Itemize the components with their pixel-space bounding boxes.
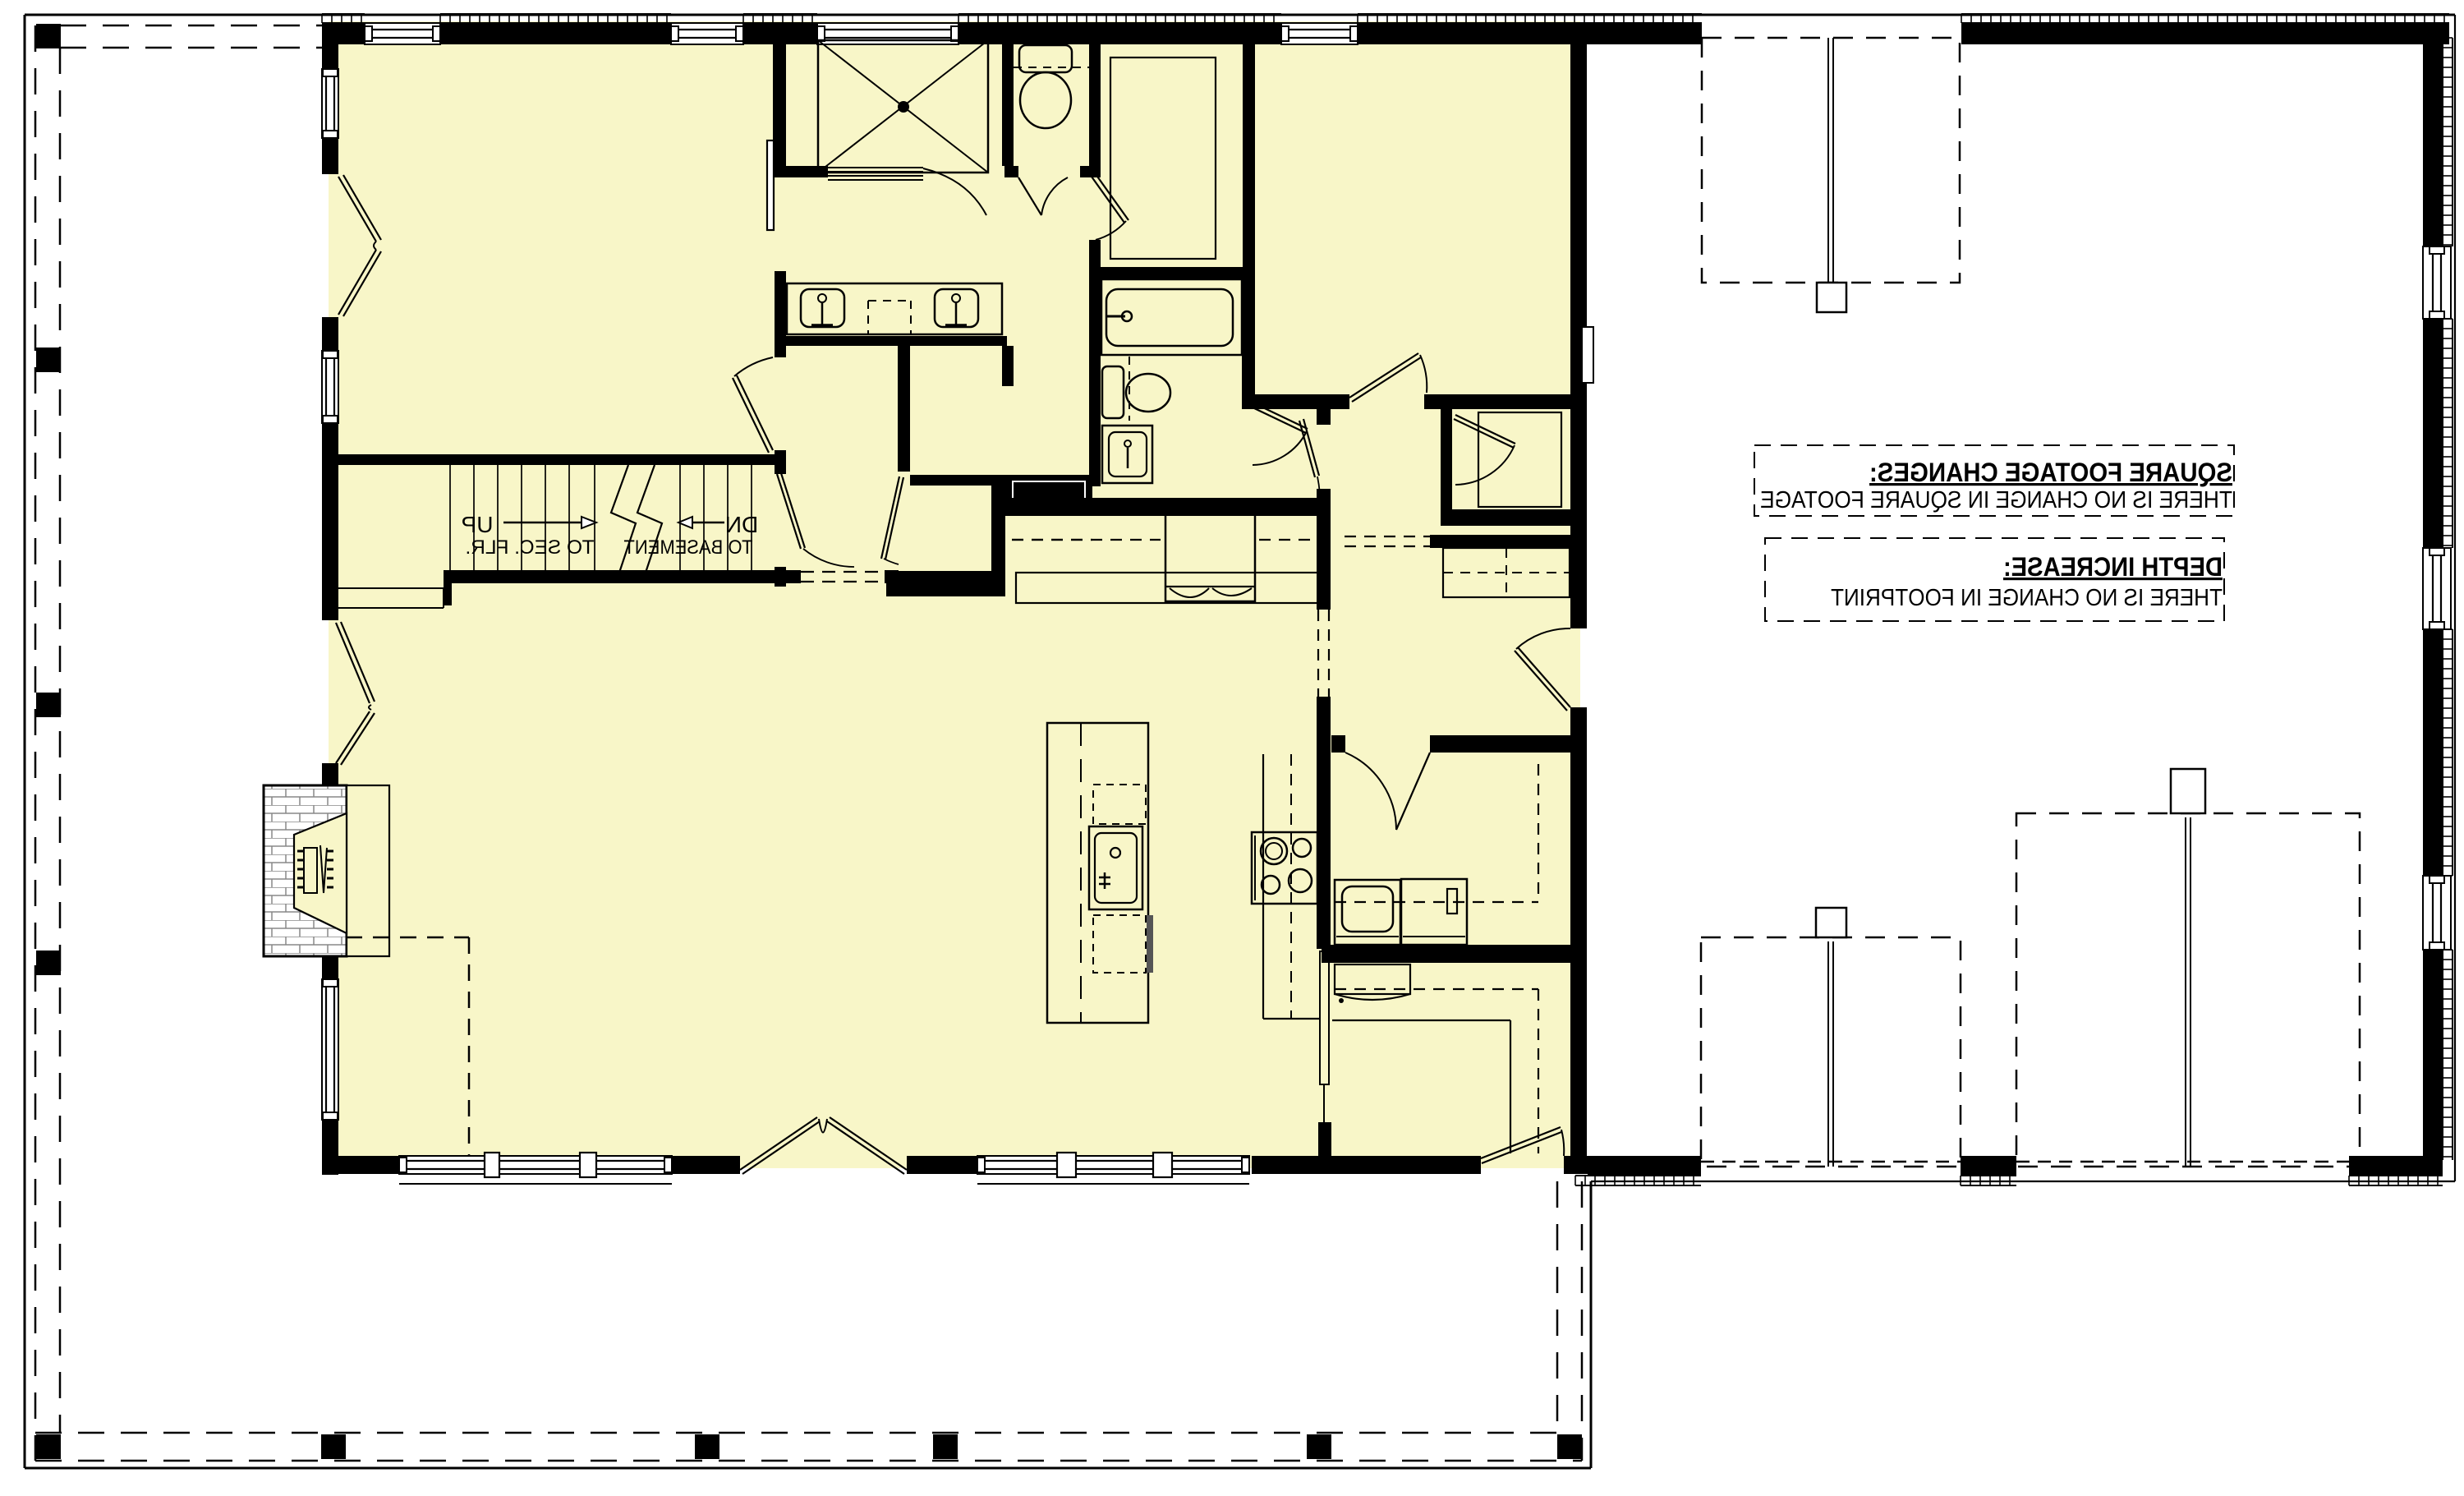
svg-text:THERE IS NO CHANGE IN SQUARE F: THERE IS NO CHANGE IN SQUARE FOOTAGE [1760, 487, 2232, 513]
svg-text:DEPTH INCREASE:: DEPTH INCREASE: [2003, 552, 2223, 582]
svg-text:SQUARE FOOTAGE CHANGES:: SQUARE FOOTAGE CHANGES: [1869, 458, 2232, 487]
svg-text:THERE IS NO CHANGE IN FOOTPRIN: THERE IS NO CHANGE IN FOOTPRINT [1831, 585, 2223, 611]
svg-text:DN: DN [725, 512, 758, 537]
svg-text:UP: UP [462, 512, 494, 537]
svg-text:TO BASEMENT: TO BASEMENT [623, 536, 752, 559]
svg-text:TO SEC. FLR.: TO SEC. FLR. [466, 536, 595, 559]
